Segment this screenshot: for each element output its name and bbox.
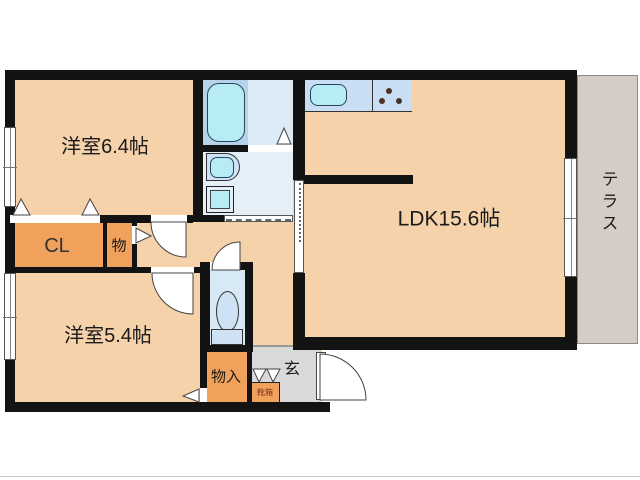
closet-cl-label: CL xyxy=(44,236,70,256)
door-arc-bedroom2 xyxy=(152,273,193,314)
storage-mono-label: 物 xyxy=(111,239,126,254)
shoebox-door-triangle-right xyxy=(267,369,280,382)
storage-monoire-label: 物入 xyxy=(211,370,241,385)
bedroom2-label: 洋室5.4帖 xyxy=(64,326,152,346)
door-arc-toilet xyxy=(212,242,240,270)
door-triangle-mono xyxy=(136,228,151,243)
genkan-label: 玄 xyxy=(284,362,300,378)
ldk-label: LDK15.6帖 xyxy=(398,209,501,230)
folding-door-triangle-bath xyxy=(277,128,291,144)
folding-door-triangle-cl-left xyxy=(13,199,30,215)
door-arc-entrance xyxy=(320,354,366,400)
folding-door-triangle-cl-right xyxy=(82,199,99,215)
door-symbols-overlay xyxy=(0,0,640,480)
bottom-edge-line xyxy=(0,476,640,477)
door-triangle-monoire xyxy=(183,389,199,402)
bedroom1-label: 洋室6.4帖 xyxy=(61,137,149,157)
shoebox-door-triangle-left xyxy=(253,369,266,382)
floorplan-canvas: テラス xyxy=(0,0,640,480)
door-arc-bedroom1 xyxy=(151,222,186,257)
shoebox-label: 靴箱 xyxy=(257,389,273,397)
